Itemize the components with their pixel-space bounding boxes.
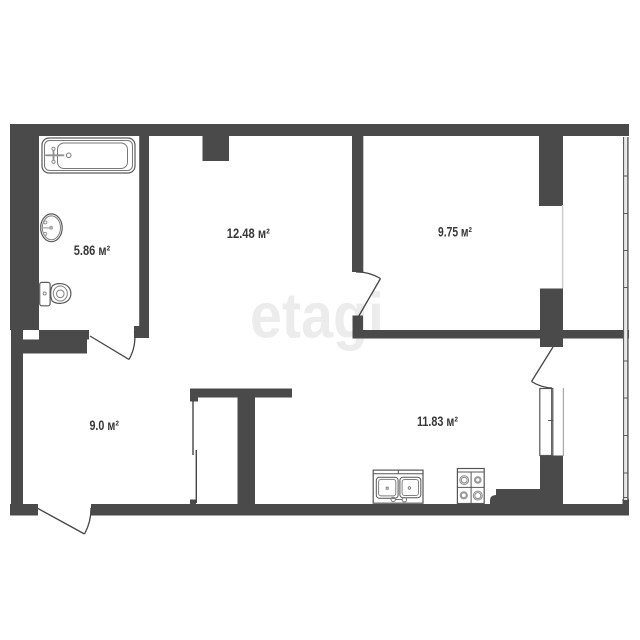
- svg-text:12.48 м²: 12.48 м²: [227, 226, 270, 241]
- svg-text:etagi: etagi: [250, 280, 384, 352]
- svg-text:5.86 м²: 5.86 м²: [74, 243, 111, 258]
- svg-text:11.83 м²: 11.83 м²: [417, 414, 458, 429]
- svg-text:9.75 м²: 9.75 м²: [438, 224, 472, 239]
- svg-text:9.0 м²: 9.0 м²: [89, 418, 119, 433]
